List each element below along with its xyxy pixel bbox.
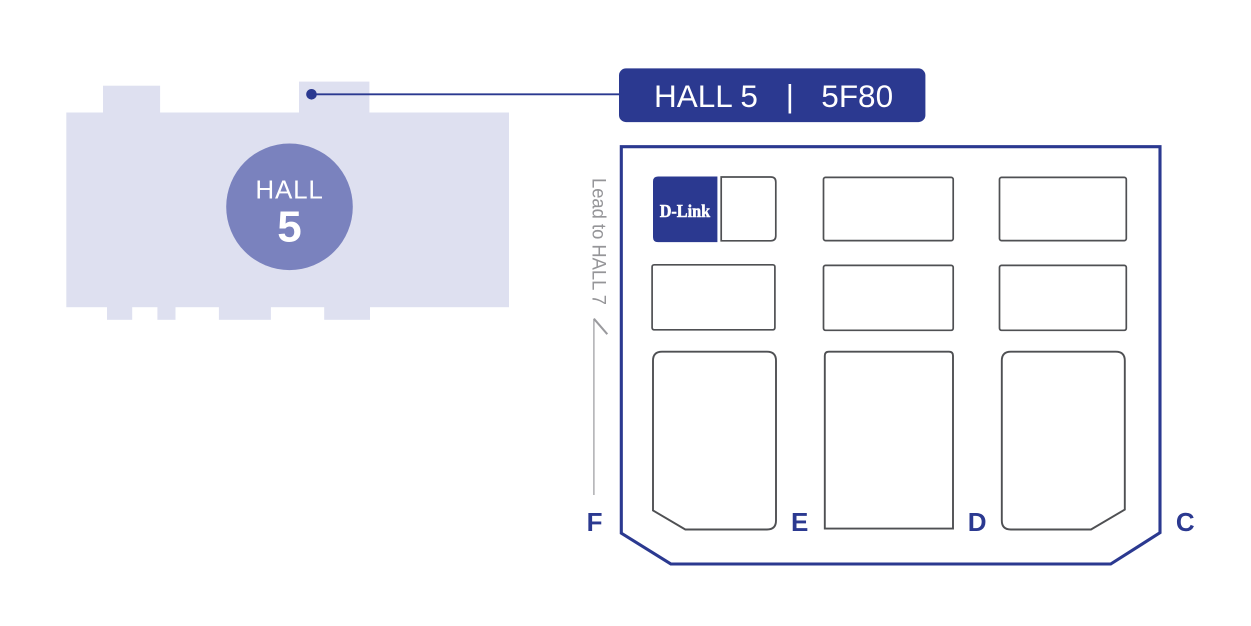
svg-text:D: D	[968, 507, 987, 537]
svg-text:C: C	[1176, 507, 1195, 537]
svg-text:E: E	[791, 507, 808, 537]
svg-text:5: 5	[277, 203, 301, 252]
svg-text:D-Link: D-Link	[660, 201, 711, 221]
svg-text:HALL: HALL	[255, 175, 323, 205]
svg-text:Lead to HALL 7: Lead to HALL 7	[588, 178, 610, 305]
svg-text:F: F	[587, 507, 603, 537]
